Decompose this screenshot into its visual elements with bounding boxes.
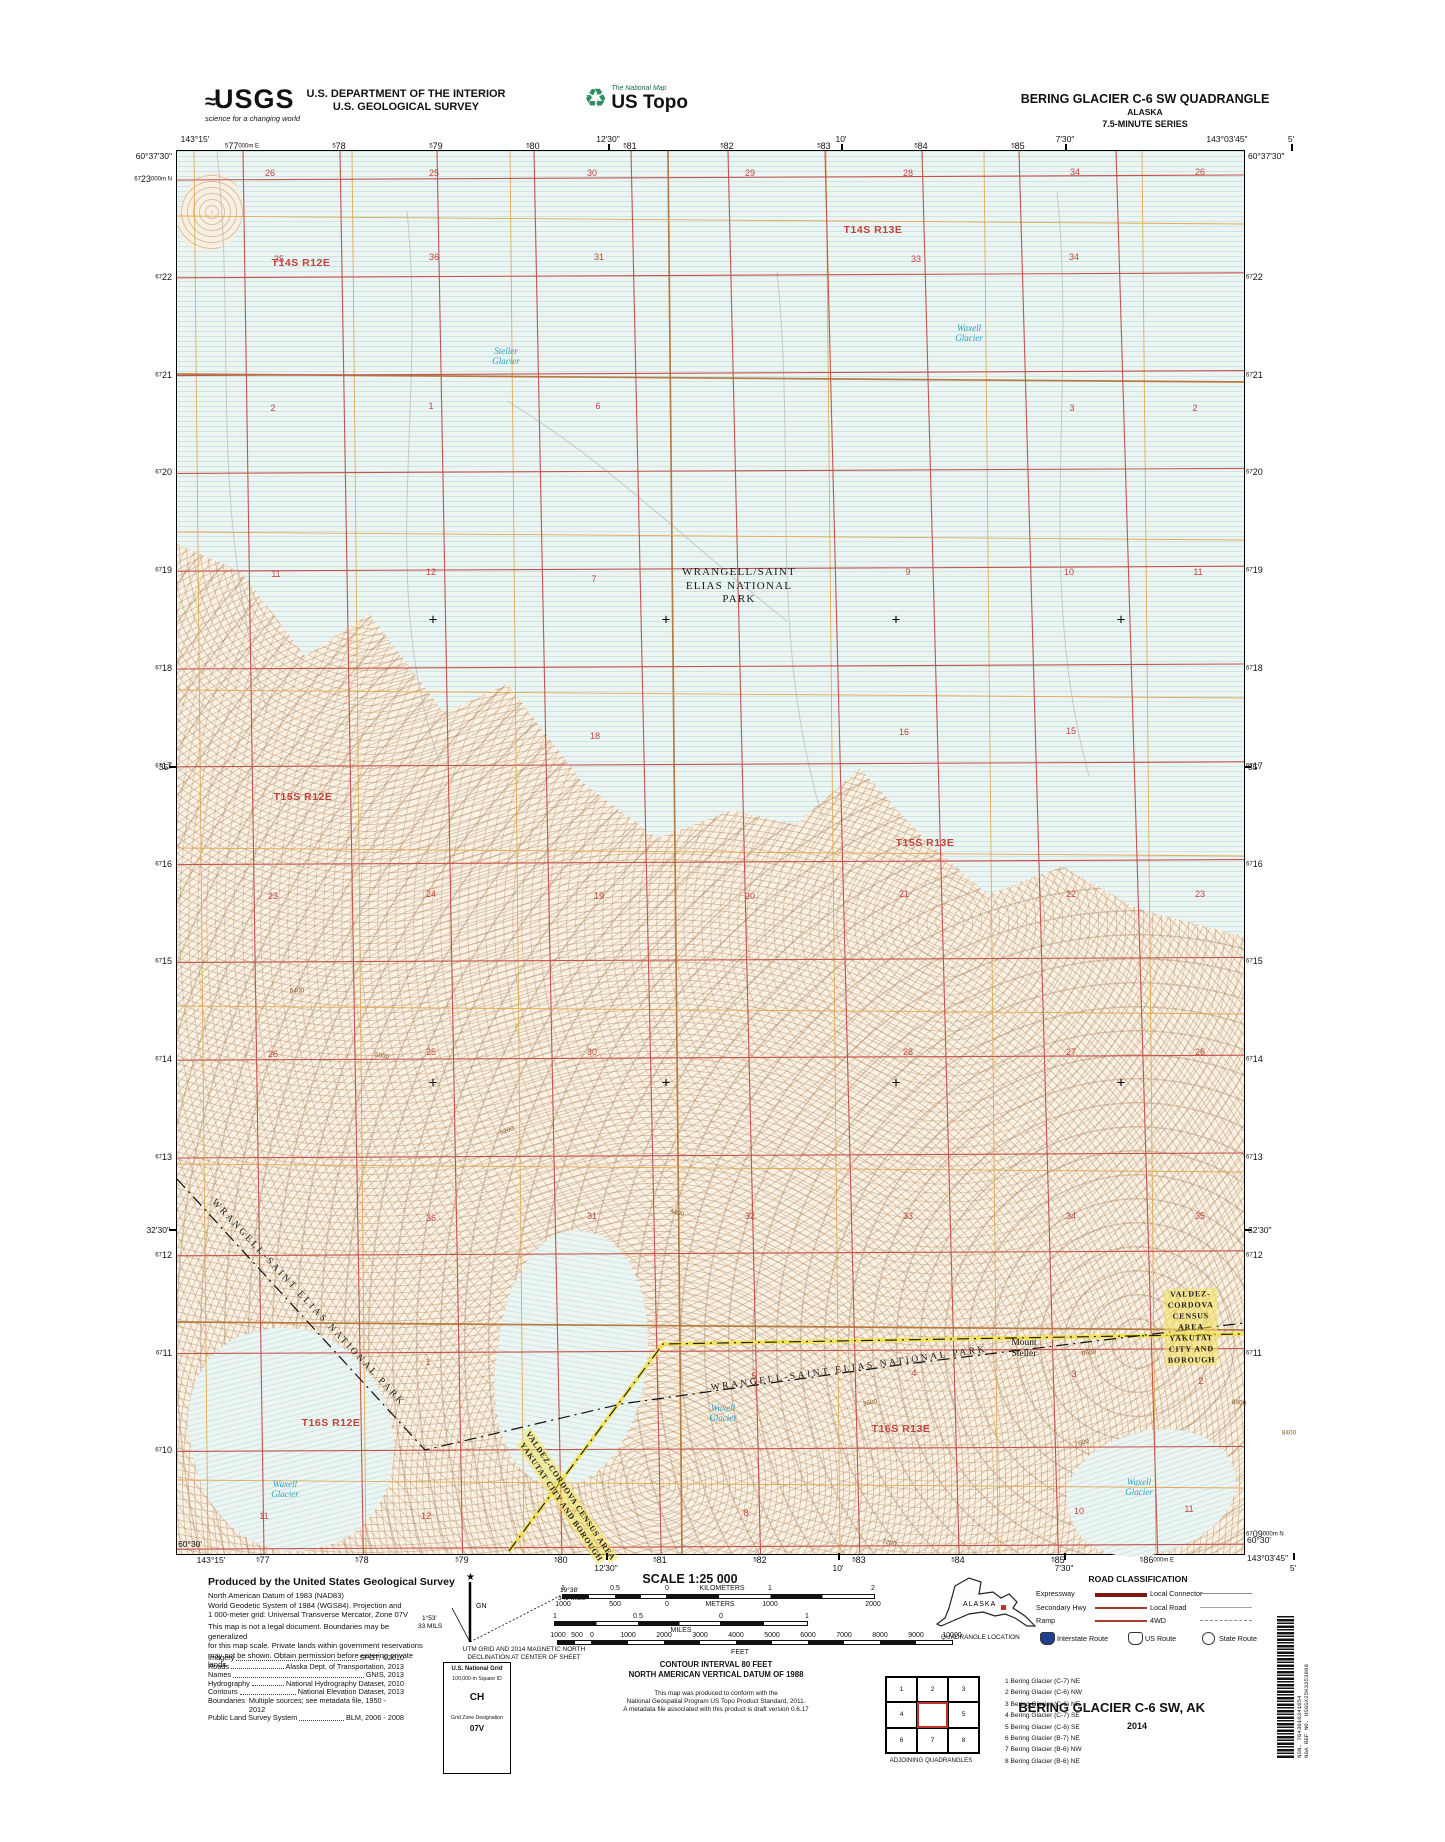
section-number: 11 [271,569,280,579]
contour-elevation-label: 6400 [290,988,304,995]
road-line-swatch [1095,1593,1147,1597]
adjoining-quadrangles-caption: ADJOINING QUADRANGLES [890,1757,973,1764]
conformance-note: This map was produced to conform with th… [556,1690,876,1713]
usng-title: U.S. National Grid [444,1666,510,1672]
adjoining-quad-name: 8 Bering Glacier (B-6) NE [1005,1756,1082,1767]
census-area-boundary-label: VALDEZ-CORDOVA CENSUS AREAYAKUTAT CITY A… [1164,1288,1218,1366]
scale-bar-segment [563,1595,667,1598]
utm-easting-label-top: 585 [1011,141,1024,151]
utm-easting-label-top: 580 [526,141,539,151]
utm-easting-label-bottom: 585 [1051,1555,1064,1565]
road-line-swatch [1200,1607,1252,1608]
adjoining-cell: 5 [948,1702,979,1727]
glacier-name-label: WaxellGlacier [271,1479,299,1499]
km-scale-mark: 0 [665,1585,669,1592]
national-park-label: WRANGELL/SAINTELIAS NATIONALPARK [682,566,796,607]
route-shield-label: State Route [1219,1634,1257,1643]
graticule-cross-icon: + [1117,1075,1126,1092]
meters-scale-mark: 1000 [555,1601,571,1608]
graticule-cross-icon: + [429,612,438,629]
credit-line: North American Datum of 1983 (NAD83) [208,1591,418,1601]
graticule-cross-icon: + [892,1075,901,1092]
section-number: 3 [1071,1369,1076,1379]
corner-bottom-right-lat: 60°30' [1247,1535,1271,1545]
utm-easting-label-bottom: 579 [455,1555,468,1565]
section-number: 34 [1069,252,1079,262]
section-number: 3 [1069,403,1074,413]
miles-scale-mark: 0.5 [633,1613,643,1620]
usng-box: U.S. National Grid 100,000-m Square ID C… [443,1662,511,1774]
utm-northing-label-right: 6713 [1246,1152,1263,1162]
feet-scale-mark: 1000 [550,1632,566,1639]
section-number: 27 [1066,1047,1076,1057]
scale-bar-segment [721,1622,807,1625]
contour-elevation-label: 8800 [1231,1399,1246,1407]
utm-northing-label-right: 6717 [1246,761,1263,771]
section-number: 24 [426,889,436,899]
section-number: 6 [595,401,600,411]
section-number: 7 [591,574,596,584]
interstate-shield-icon [1040,1632,1055,1645]
usgs-tagline: science for a changing world [205,114,325,123]
section-number: 10 [1074,1506,1084,1516]
dot-leader [236,1654,357,1661]
feet-scale-mark: 7000 [836,1632,852,1639]
conformance-line: This map was produced to conform with th… [556,1690,876,1698]
utm-northing-label-right: 6716 [1246,859,1263,869]
feet-scale-mark: 1000 [620,1632,636,1639]
meters-scale-mark: METERS [705,1601,734,1608]
feet-scale-mark: 9000 [908,1632,924,1639]
utm-easting-label-top: 577000m E [225,141,259,151]
graticule-tick [1065,144,1067,151]
utm-easting-label-bottom: 578 [355,1555,368,1565]
section-number: 26 [1195,1047,1205,1057]
miles-unit-label: MILES [670,1627,691,1634]
miles-scale-mark: 0 [719,1613,723,1620]
section-number: 31 [587,1211,597,1221]
source-key: Boundaries [208,1697,245,1714]
km-scale-mark: 1 [561,1585,565,1592]
quad-series: 7.5-MINUTE SERIES [1000,118,1290,130]
section-number: 36 [426,1213,436,1223]
section-number: 4 [911,1368,916,1378]
barcode [1277,1616,1294,1758]
township-range-label: T16S R13E [872,1423,931,1435]
sheet-year: 2014 [1127,1721,1147,1731]
usgs-wave-icon: ≈ [205,91,214,113]
scale-title: SCALE 1:25 000 [642,1572,737,1586]
alaska-label: ALASKA [963,1601,996,1608]
adjoining-quad-name: 7 Bering Glacier (B-6) NW [1005,1744,1082,1755]
adjoining-quadrangles-grid: 12345678 [885,1676,980,1754]
road-line-swatch [1200,1593,1252,1594]
ustopo-recycle-icon: ♻ [584,83,607,113]
section-number: 2 [270,403,275,413]
kilometers-bar [563,1595,874,1598]
graticule-tick [1291,144,1293,151]
vertical-datum-note: NORTH AMERICAN VERTICAL DATUM OF 1988 [566,1670,866,1679]
utm-northing-label-right: 6715 [1246,956,1263,966]
source-key: Public Land Survey System [208,1714,297,1723]
utm-northing-label-left: 6714 [106,1054,172,1064]
scale-bar-segment [558,1641,592,1644]
adjoining-cell-current [917,1702,948,1727]
adjoining-cell: 6 [886,1728,917,1753]
ustopo-word: US Topo [611,93,688,112]
road-line-swatch [1095,1620,1147,1622]
section-number: 25 [426,1047,436,1057]
graticule-tick [841,144,843,151]
source-value: BLM, 2006 - 2008 [346,1714,404,1723]
utm-northing-label-left: 6715 [106,956,172,966]
barcode-nga: NGA REF NO. USGSX25K3353888 [1303,1616,1310,1758]
utm-northing-label-left: 6711 [106,1348,172,1358]
section-number: 26 [265,168,275,178]
km-scale-mark: 1 [768,1585,772,1592]
corner-top-right-lat: 60°37'30" [1248,151,1284,161]
utm-northing-label-right: 6714 [1246,1054,1263,1064]
graticule-tick [1244,1229,1251,1231]
section-number: 34 [1066,1211,1076,1221]
section-number: 1 [428,401,433,411]
graticule-cross-icon: + [892,612,901,629]
graticule-cross-icon: + [662,612,671,629]
us-shield-icon [1128,1632,1143,1645]
data-sources-list: ImagerySPOT, ©2010RoadsAlaska Dept. of T… [208,1654,404,1723]
ustopo-logo: ♻ The National Map US Topo [583,84,713,134]
utm-easting-label-bottom: 581 [653,1555,666,1565]
true-north-star-icon: ★ [466,1572,475,1583]
township-range-label: T15S R12E [274,791,333,803]
utm-northing-label-left: 6721 [106,370,172,380]
graticule-tick [608,144,610,151]
section-number: 21 [899,889,909,899]
road-line-swatch [1095,1607,1147,1610]
utm-northing-label-right: 6711 [1246,1348,1262,1358]
adjoining-cell: 4 [886,1702,917,1727]
section-number: 33 [911,254,921,264]
corner-top-left-lat: 60°37'30" [108,151,172,161]
section-number: 30 [587,1047,597,1057]
adjoining-quad-name: 1 Bering Glacier (C-7) NE [1005,1676,1082,1687]
map-sheet: ≈USGS science for a changing world U.S. … [0,0,1445,1842]
route-shield-label: Interstate Route [1057,1634,1108,1643]
section-number: 23 [1195,889,1205,899]
adjoining-cell: 2 [917,1677,948,1702]
section-number: 12 [421,1511,431,1521]
section-number: 19 [594,891,604,901]
corner-bottom-right-lon: 143°03'45" [1247,1553,1288,1563]
scale-bar-segment [667,1595,874,1598]
utm-northing-label-left: 6723000m N [106,174,172,184]
meters-scale-mark: 2000 [865,1601,881,1608]
township-range-label: T16S R12E [302,1417,361,1429]
latitude-tick-label-left: 32'30" [126,1225,170,1235]
map-area: ++++++++26253029283426353631333421632111… [176,150,1245,1555]
feet-bar [558,1641,952,1644]
utm-northing-label-right: 6719 [1246,565,1263,575]
utm-easting-label-bottom: 586000m E [1140,1555,1174,1565]
section-number: 35 [1195,1211,1205,1221]
graticule-tick [1293,1553,1295,1560]
utm-northing-label-left: 6718 [106,663,172,673]
utm-northing-label-left: 6716 [106,859,172,869]
section-number: 23 [268,891,278,901]
miles-scale-mark: 1 [553,1613,557,1620]
conformance-line: National Geospatial Program US Topo Prod… [556,1698,876,1706]
feet-scale-mark: 500 [571,1632,583,1639]
section-number: 11 [1193,567,1202,577]
adjoining-quadrangles-list: 1 Bering Glacier (C-7) NE2 Bering Glacie… [1005,1676,1082,1767]
dept-line1: U.S. DEPARTMENT OF THE INTERIOR [256,88,556,101]
road-line-swatch [1200,1620,1252,1621]
feet-scale-mark: 5000 [764,1632,780,1639]
credit-line: 1 000-meter grid: Universal Transverse M… [208,1610,418,1620]
section-number: 10 [1064,567,1074,577]
longitude-tick-label-top: 5' [1288,134,1294,144]
source-value: Multiple sources; see metadata file, 195… [249,1697,404,1714]
conformance-line: A metadata file associated with this pro… [556,1706,876,1714]
km-scale-mark: KILOMETERS [699,1585,744,1592]
feet-scale-mark: 4000 [728,1632,744,1639]
feet-scale-mark: 8000 [872,1632,888,1639]
utm-northing-label-left: 6717 [106,761,172,771]
dept-line2: U.S. GEOLOGICAL SURVEY [256,101,556,114]
miles-scale-mark: 1 [805,1613,809,1620]
township-range-label: T14S R12E [272,257,331,269]
sheet-title: BERING GLACIER C-6 SW, AK [1018,1700,1205,1715]
section-number: 16 [899,727,909,737]
utm-northing-label-left: 6722 [106,272,172,282]
utm-northing-label-right: 6720 [1246,467,1263,477]
utm-northing-label-right: 6722 [1246,272,1263,282]
section-number: 2 [1198,1376,1203,1386]
corner-bottom-left-lat: 60°30' [138,1539,202,1549]
section-number: 1 [425,1357,430,1367]
section-number: 25 [429,168,439,178]
adjoining-quad-name: 6 Bering Glacier (B-7) NE [1005,1733,1082,1744]
usng-subtitle: 100,000-m Square ID [444,1676,510,1682]
longitude-tick-label-bottom: 5' [1290,1563,1296,1573]
declination-caption-line1: UTM GRID AND 2014 MAGNETIC NORTH [434,1646,614,1654]
adjoining-cell: 3 [948,1677,979,1702]
source-line: Public Land Survey SystemBLM, 2006 - 200… [208,1714,404,1723]
scale-bar-segment [592,1641,952,1644]
corner-top-right-lon: 143°03'45" [1206,134,1247,144]
section-number: 28 [903,1047,913,1057]
usng-zone-label: Grid Zone Designation [444,1715,510,1721]
section-number: 30 [587,168,597,178]
adjoining-cell: 7 [917,1728,948,1753]
declination-caption: UTM GRID AND 2014 MAGNETIC NORTH DECLINA… [434,1646,614,1661]
meters-scale-mark: 500 [609,1601,621,1608]
mount-steller-label: MountSteller [1011,1338,1036,1360]
barcode-nsn: NSN. 7643016341654 [1296,1616,1303,1758]
meters-scale-mark: 0 [665,1601,669,1608]
graticule-cross-icon: + [1117,612,1126,629]
utm-easting-label-top: 581 [623,141,636,151]
datum-credits: North American Datum of 1983 (NAD83)Worl… [208,1591,418,1620]
adjoining-cell: 8 [948,1728,979,1753]
graticule-cross-icon: + [429,1075,438,1092]
section-number: 9 [905,567,910,577]
section-number: 36 [429,252,439,262]
adjoining-quad-name: 2 Bering Glacier (C-6) NW [1005,1687,1082,1698]
corner-bottom-left-lon: 143°15' [197,1555,226,1565]
utm-northing-label-right: 6721 [1246,370,1263,380]
section-number: 34 [1070,167,1080,177]
quad-state: ALASKA [1000,107,1290,118]
utm-northing-label-left: 6710 [106,1445,172,1455]
longitude-tick-label-top: 12'30" [596,134,620,144]
feet-unit-label: FEET [731,1649,749,1656]
utm-easting-label-top: 584 [914,141,927,151]
feet-scale-mark: 3000 [692,1632,708,1639]
utm-northing-label-left: 6712 [106,1250,172,1260]
utm-easting-label-top: 583 [817,141,830,151]
section-number: 22 [1066,889,1076,899]
svg-text:33 MILS: 33 MILS [418,1623,443,1630]
usng-square-id: CH [444,1692,510,1703]
source-line: BoundariesMultiple sources; see metadata… [208,1697,404,1714]
adjoining-quad-name: 5 Bering Glacier (C-6) SE [1005,1722,1082,1733]
disclaimer-line: for this map scale. Private lands within… [208,1641,423,1651]
utm-easting-label-top: 582 [720,141,733,151]
state-shield-icon [1202,1632,1215,1645]
miles-bar [555,1622,807,1625]
scale-bar-segment [555,1622,721,1625]
utm-northing-label-left: 6719 [106,565,172,575]
utm-northing-label-right: 6712 [1246,1250,1263,1260]
feet-scale-mark: 6000 [800,1632,816,1639]
usng-zone: 07V [444,1724,510,1733]
dot-leader [252,1680,284,1687]
dot-leader [231,1663,283,1670]
quad-location-marker [1001,1605,1006,1610]
glacier-name-label: WaxellGlacier [709,1403,737,1423]
graticule-tick [606,1553,608,1560]
utm-northing-label-left: 6713 [106,1152,172,1162]
section-number: 18 [590,731,600,741]
section-number: 31 [594,252,604,262]
utm-easting-label-bottom: 584 [951,1555,964,1565]
corner-top-left-lon: 143°15' [181,134,210,144]
utm-easting-label-bottom: 582 [753,1555,766,1565]
section-number: 11 [1184,1504,1193,1514]
feet-scale-mark: 0 [590,1632,594,1639]
glacier-name-label: StellerGlacier [492,346,520,366]
glacier-name-label: WaxellGlacier [1125,1477,1153,1497]
section-number: 32 [745,1211,755,1221]
quadrangle-title-block: BERING GLACIER C-6 SW QUADRANGLE ALASKA … [1000,92,1290,130]
contour-interval-note: CONTOUR INTERVAL 80 FEET [566,1660,866,1669]
utm-easting-label-bottom: 583 [852,1555,865,1565]
section-number: 15 [1066,726,1076,736]
graticule-cross-icon: + [662,1075,671,1092]
section-number: 8 [743,1508,748,1518]
feet-scale-mark: 2000 [656,1632,672,1639]
utm-northing-label-right: 6718 [1246,663,1263,673]
longitude-tick-label-bottom: 10' [832,1563,843,1573]
utm-easting-label-bottom: 580 [554,1555,567,1565]
adjoining-cell: 1 [886,1677,917,1702]
department-header: U.S. DEPARTMENT OF THE INTERIOR U.S. GEO… [256,88,556,114]
contour-elevation-label: 8400 [1282,1430,1296,1437]
grid-north-label: GN [476,1603,487,1610]
longitude-tick-label-top: 7'30" [1056,134,1075,144]
glacier-name-label: WaxellGlacier [955,323,983,343]
km-scale-mark: 0.5 [610,1585,620,1592]
latitude-tick-label-right: 32'30" [1248,1225,1272,1235]
route-shield-label: US Route [1145,1634,1176,1643]
utm-easting-label-top: 578 [332,141,345,151]
graticule-tick [169,1229,176,1231]
dot-leader [299,1714,344,1721]
meters-scale-mark: 1000 [762,1601,778,1608]
section-number: 2 [1192,403,1197,413]
road-classification-title: ROAD CLASSIFICATION [1088,1574,1187,1584]
section-number: 26 [1195,167,1205,177]
utm-northing-label-left: 6720 [106,467,172,477]
utm-easting-label-bottom: 577 [256,1555,269,1565]
km-scale-mark: 2 [871,1585,875,1592]
quad-title: BERING GLACIER C-6 SW QUADRANGLE [1000,92,1290,107]
grid-overlay [177,151,1244,1554]
section-number: 28 [903,168,913,178]
longitude-tick-label-top: 10' [835,134,846,144]
township-range-label: T14S R13E [844,224,903,236]
dot-leader [240,1688,296,1695]
credit-line: World Geodetic System of 1984 (WGS84). P… [208,1601,418,1611]
section-number: 12 [426,567,436,577]
section-number: 33 [903,1211,913,1221]
section-number: 26 [268,1049,278,1059]
svg-text:1°53': 1°53' [422,1614,437,1622]
section-number: 29 [745,168,755,178]
dot-leader [233,1671,364,1678]
utm-easting-label-top: 579 [429,141,442,151]
section-number: 20 [745,891,755,901]
disclaimer-line: This map is not a legal document. Bounda… [208,1622,423,1641]
barcode-text: NSN. 7643016341654 NGA REF NO. USGSX25K3… [1296,1616,1320,1758]
township-range-label: T15S R13E [896,837,955,849]
section-number: 11 [259,1511,268,1521]
graticule-tick [838,1553,840,1560]
